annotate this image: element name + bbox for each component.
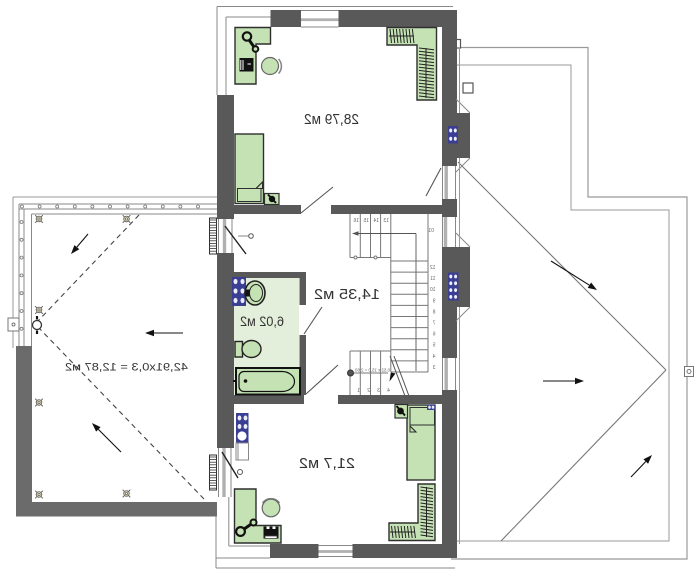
svg-text:15: 15 xyxy=(363,218,369,224)
svg-text:42,91x0,3 = 12,87 м2: 42,91x0,3 = 12,87 м2 xyxy=(65,362,188,374)
svg-text:4: 4 xyxy=(433,354,436,360)
svg-text:12: 12 xyxy=(430,265,436,271)
svg-text:14: 14 xyxy=(373,218,379,224)
svg-text:3: 3 xyxy=(377,388,380,394)
svg-text:7: 7 xyxy=(433,321,436,327)
svg-text:14,35 м2: 14,35 м2 xyxy=(314,286,380,303)
svg-text:01: 01 xyxy=(428,228,434,234)
svg-text:0,52 x 15,0 = 2,60: 0,52 x 15,0 = 2,60 xyxy=(355,368,390,374)
svg-text:5: 5 xyxy=(433,343,436,349)
svg-text:1: 1 xyxy=(357,388,360,394)
svg-text:13: 13 xyxy=(383,218,389,224)
svg-text:8: 8 xyxy=(433,309,436,315)
svg-text:2: 2 xyxy=(367,388,370,394)
svg-text:6,02 м2: 6,02 м2 xyxy=(240,313,284,329)
svg-text:9: 9 xyxy=(433,298,436,304)
svg-text:11: 11 xyxy=(430,276,435,282)
svg-text:28,79 м2: 28,79 м2 xyxy=(304,111,359,128)
svg-text:16: 16 xyxy=(353,218,359,224)
svg-text:4: 4 xyxy=(387,388,390,394)
svg-text:21,7 м2: 21,7 м2 xyxy=(299,455,355,472)
svg-text:3: 3 xyxy=(433,365,436,371)
svg-text:6: 6 xyxy=(433,332,436,338)
svg-text:10: 10 xyxy=(430,287,436,293)
